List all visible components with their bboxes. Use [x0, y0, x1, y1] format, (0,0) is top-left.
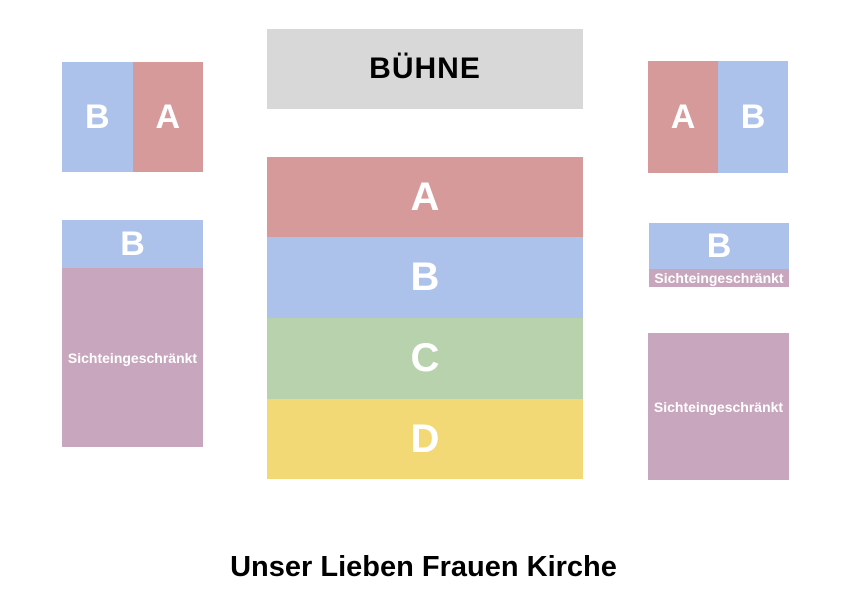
section-left-side-b[interactable]: B — [62, 220, 203, 268]
section-label-b: B — [411, 255, 440, 300]
section-center-c[interactable]: C — [267, 318, 583, 399]
restricted-view-label: Sichteingeschränkt — [654, 399, 783, 415]
section-left-front-b[interactable]: B — [62, 62, 133, 172]
section-label-c: C — [411, 336, 440, 381]
section-left-restricted-view[interactable]: Sichteingeschränkt — [62, 268, 203, 447]
section-center-d[interactable]: D — [267, 399, 583, 479]
block-right-front: A B — [648, 61, 788, 173]
section-label-b: B — [120, 225, 145, 264]
section-label-a: A — [411, 175, 440, 220]
section-label-a: A — [155, 98, 180, 137]
section-right-front-a[interactable]: A — [648, 61, 718, 173]
section-label-d: D — [411, 417, 440, 462]
venue-title: Unser Lieben Frauen Kirche — [0, 551, 847, 584]
section-right-side-b[interactable]: B — [649, 223, 789, 269]
restricted-view-label: Sichteingeschränkt — [654, 270, 783, 286]
section-center-b[interactable]: B — [267, 237, 583, 318]
section-label-b: B — [741, 98, 766, 137]
section-right-rear-restricted-view[interactable]: Sichteingeschränkt — [648, 333, 789, 480]
section-label-b: B — [85, 98, 110, 137]
seating-map: BÜHNE B A A B A B C D B Sichteingeschrän… — [0, 0, 847, 603]
section-label-a: A — [671, 98, 696, 137]
section-right-restricted-banner[interactable]: Sichteingeschränkt — [649, 269, 789, 287]
section-right-front-b[interactable]: B — [718, 61, 788, 173]
block-left-front: B A — [62, 62, 203, 172]
section-left-front-a[interactable]: A — [133, 62, 204, 172]
section-label-b: B — [707, 227, 732, 266]
section-center-a[interactable]: A — [267, 157, 583, 237]
restricted-view-label: Sichteingeschränkt — [68, 350, 197, 366]
stage-block: BÜHNE — [267, 29, 583, 109]
